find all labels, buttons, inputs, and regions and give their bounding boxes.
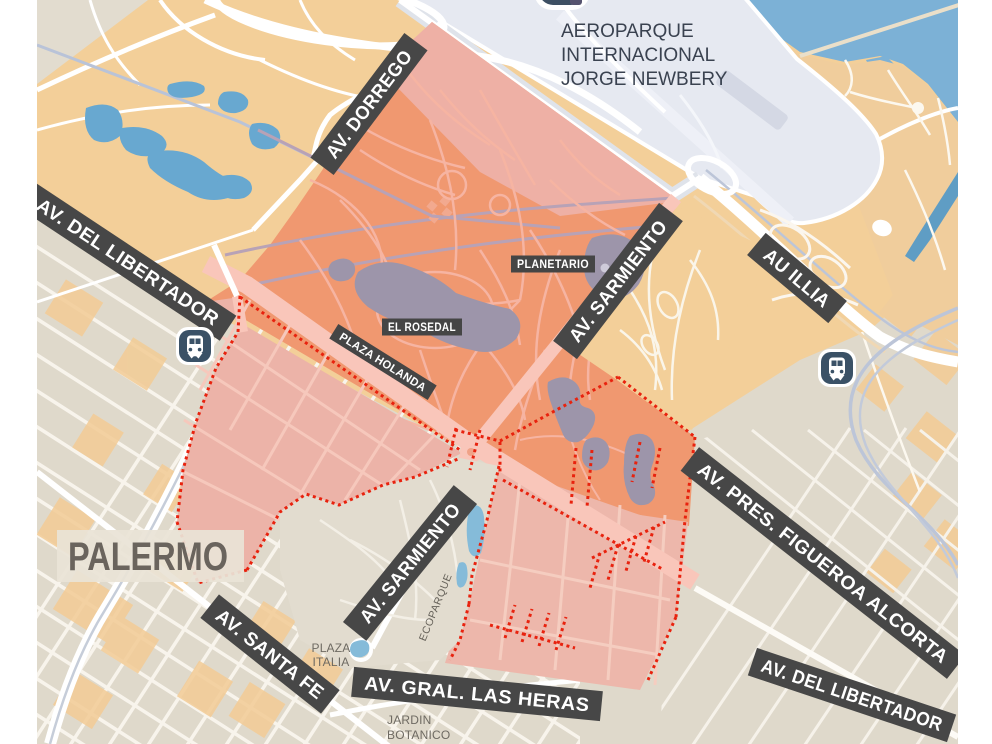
- svg-text:PLAZA: PLAZA: [311, 641, 350, 655]
- svg-text:ITALIA: ITALIA: [313, 655, 350, 669]
- svg-text:EL ROSEDAL: EL ROSEDAL: [388, 322, 456, 334]
- svg-text:PLANETARIO: PLANETARIO: [517, 259, 589, 271]
- svg-text:AEROPARQUE: AEROPARQUE: [561, 21, 694, 42]
- svg-text:JARDIN: JARDIN: [387, 713, 432, 727]
- svg-text:INTERNACIONAL: INTERNACIONAL: [561, 45, 715, 66]
- svg-text:BOTANICO: BOTANICO: [387, 728, 450, 742]
- svg-text:JORGE NEWBERY: JORGE NEWBERY: [561, 69, 728, 90]
- svg-text:PALERMO: PALERMO: [68, 535, 228, 579]
